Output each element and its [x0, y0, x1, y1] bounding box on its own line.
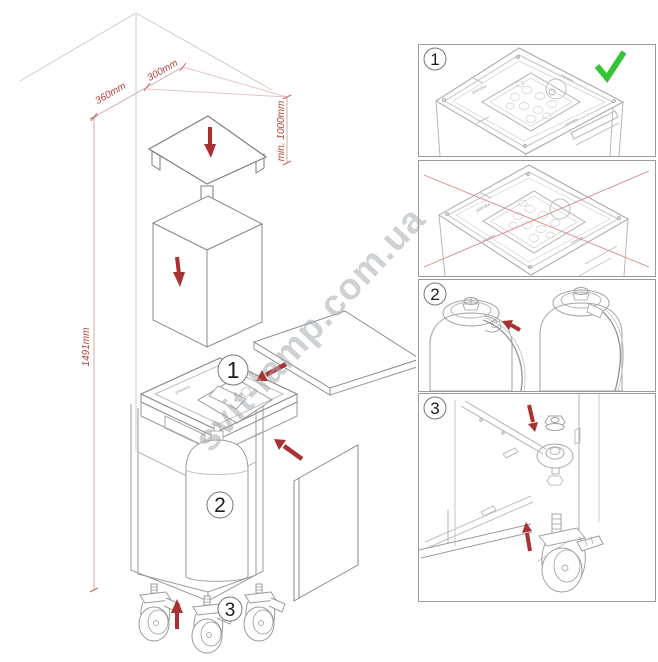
- step1-badge: 1: [218, 355, 248, 385]
- hex-hole: [547, 476, 563, 485]
- step3-number: 3: [225, 600, 236, 621]
- panel4-number: 3: [430, 399, 439, 418]
- panel3-badge: 2: [424, 283, 446, 305]
- caster-detail: [539, 514, 603, 592]
- step1-number: 1: [227, 357, 240, 383]
- dim-width-left-label: 360mm: [94, 81, 128, 107]
- arrow-down-nut-icon: [528, 405, 538, 432]
- caster-right: [244, 584, 285, 641]
- panel3-number: 2: [430, 285, 439, 304]
- panel1-drawing: planika 1: [419, 45, 655, 156]
- step2-number: 2: [214, 494, 226, 517]
- arrow-up-caster-icon: [522, 522, 532, 551]
- panel1-lid-top-view: [436, 48, 623, 156]
- detail-panel-1: planika 1: [418, 44, 656, 157]
- dim-width-right-label: 300mm: [146, 58, 180, 84]
- arrow-shelf-icon: [256, 364, 286, 381]
- top-cap: [149, 116, 266, 201]
- detail-panel-3: 2: [418, 279, 656, 392]
- arrow-side-panel-icon: [274, 439, 302, 459]
- assembly-instruction-sheet: 360mm 300mm min. 1000mm 1491mm: [0, 0, 658, 662]
- checkmark-icon: [597, 52, 624, 78]
- panel1-badge: 1: [424, 48, 446, 70]
- panel4-drawing: 3: [419, 394, 655, 601]
- flange-nut: [545, 416, 565, 431]
- dim-height-label: 1491mm: [81, 328, 92, 367]
- gas-bottle-left: [430, 298, 525, 392]
- detail-panel-2: planika: [418, 160, 656, 277]
- panel2-drawing: planika: [419, 161, 655, 276]
- side-panel: [294, 445, 358, 601]
- shelf-panel: [254, 311, 416, 395]
- step3-badge: 3: [218, 597, 242, 621]
- detail-panel-4: 3: [418, 393, 656, 602]
- panel1-number: 1: [430, 50, 439, 69]
- step2-badge: 2: [207, 492, 233, 518]
- panel4-badge: 3: [424, 397, 446, 419]
- panel3-drawing: 2: [419, 280, 655, 391]
- cabinet-bottom-corner: [419, 510, 532, 558]
- gas-bottle-right: [540, 288, 623, 392]
- exploded-view-figure: 360mm 300mm min. 1000mm 1491mm: [0, 0, 416, 662]
- dim-clearance-label: min. 1000mm: [276, 101, 287, 162]
- glass-column: [153, 196, 262, 347]
